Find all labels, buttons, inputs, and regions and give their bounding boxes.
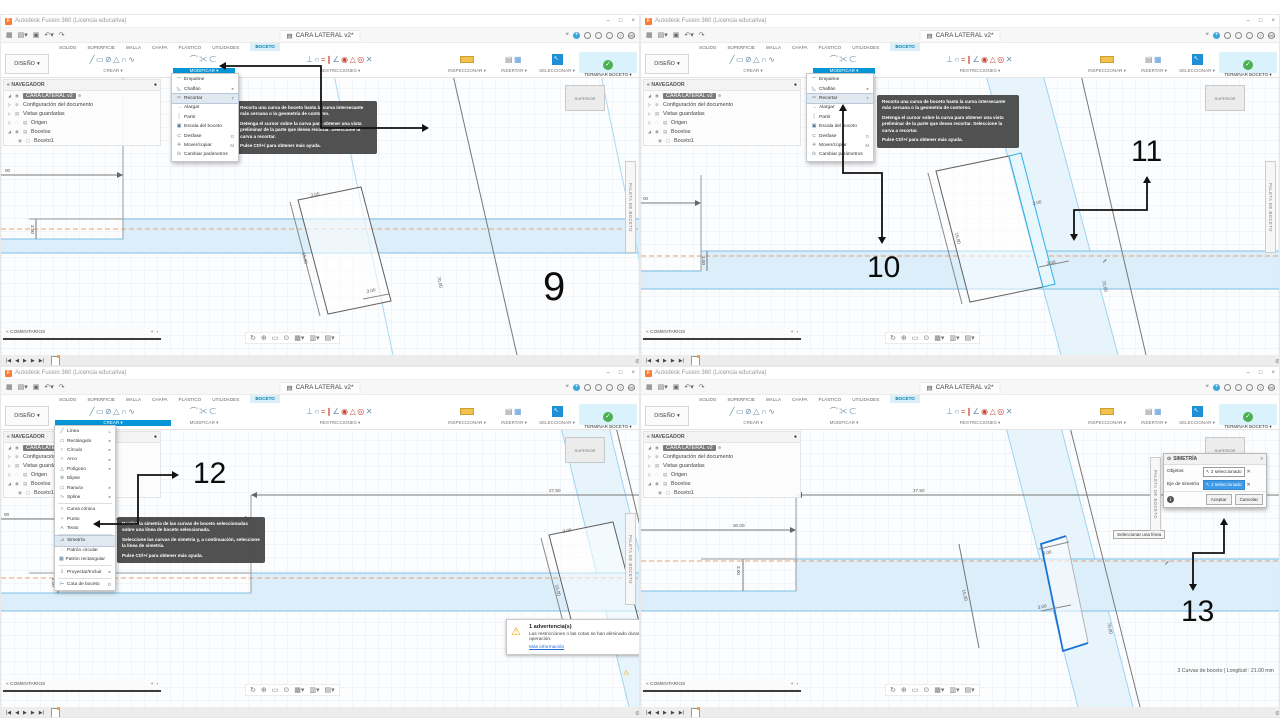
- add-comment-icon[interactable]: +: [791, 330, 794, 335]
- orbit-icon[interactable]: ↻: [890, 334, 896, 342]
- menu-item-desfase[interactable]: ⊂DesfaseO: [172, 131, 238, 140]
- inspeccionar-group-label[interactable]: INSPECCIONAR ▾: [445, 68, 489, 74]
- tab-solido[interactable]: SOLIDO: [699, 45, 716, 50]
- browser-item-origin[interactable]: ▷◌▤Origen: [4, 118, 160, 127]
- job-status-icon[interactable]: [595, 384, 602, 391]
- comments-bar[interactable]: « COMENTARIOS +›: [643, 327, 801, 340]
- menu-item-empalme[interactable]: ⌒Empalme: [807, 75, 873, 84]
- file-menu-icon[interactable]: ▤▾: [658, 383, 668, 391]
- save-icon[interactable]: ▣: [33, 31, 40, 39]
- browser-item-named-views[interactable]: ▷▤Vistas guardadas: [4, 109, 160, 118]
- job-status-icon[interactable]: [1235, 384, 1242, 391]
- menu-item-circulo[interactable]: ○Círculo▸: [55, 446, 115, 455]
- offset-tool-icon: ⊂: [209, 55, 219, 64]
- modificar-group-label[interactable]: MODIFICAR ▾: [813, 420, 875, 426]
- menu-item-mover[interactable]: ✛Mover/copiarM: [172, 141, 238, 150]
- menu-item-curva-conica[interactable]: ∩Curva cónica: [55, 505, 115, 514]
- menu-item-proyectar[interactable]: ⇩Proyectar/Incluir▸: [55, 567, 115, 576]
- timeline-begin-icon[interactable]: |◀: [6, 358, 11, 364]
- insertar-group-label[interactable]: INSERTAR ▾: [493, 420, 535, 426]
- browser-root-row[interactable]: ◢◉CARA LATERAL v2⊕: [644, 443, 800, 452]
- tab-plastico[interactable]: PLÁSTICO: [179, 397, 202, 402]
- menu-item-chaflan[interactable]: ◺Chaflán▸: [172, 84, 238, 93]
- circle-tool-icon: ⊘: [745, 55, 753, 64]
- rectangle-tool-icon: ▭: [96, 407, 105, 416]
- save-icon[interactable]: ▣: [673, 383, 680, 391]
- fillet-icon: ⌒: [176, 76, 182, 83]
- clear-selection-icon[interactable]: ✕: [1247, 482, 1251, 488]
- comments-bar[interactable]: « COMENTARIOS +›: [643, 679, 801, 692]
- timeline-end-icon[interactable]: ▶|: [39, 710, 44, 716]
- chevron-down-icon: ▾: [37, 61, 40, 67]
- tab-close-icon[interactable]: ×: [1205, 32, 1209, 38]
- finish-sketch-button[interactable]: ✓ TERMINAR BOCETO ▾: [579, 52, 637, 73]
- tab-chapa[interactable]: CHAPA: [152, 45, 168, 50]
- browser-root-row[interactable]: ◢◉CARA LATERAL v2⊕: [4, 91, 160, 100]
- pan-icon[interactable]: ⊕: [901, 686, 907, 694]
- new-tab-icon[interactable]: +: [1213, 384, 1220, 391]
- restricciones-group-label[interactable]: RESTRICCIONES ▾: [241, 420, 439, 426]
- fit-view-icon[interactable]: ⊙: [923, 686, 929, 694]
- select-cursor-icon[interactable]: ↖: [552, 54, 563, 65]
- expand-icon[interactable]: ›: [796, 682, 798, 687]
- tab-utilidades[interactable]: UTILIDADES: [212, 397, 239, 402]
- clear-selection-icon[interactable]: ✕: [1247, 469, 1251, 475]
- extensions-icon[interactable]: [1224, 384, 1231, 391]
- expand-icon[interactable]: ›: [796, 330, 798, 335]
- menu-item-punto[interactable]: +Punto: [55, 515, 115, 524]
- tab-chapa[interactable]: CHAPA: [792, 45, 808, 50]
- timeline-begin-icon[interactable]: |◀: [646, 710, 651, 716]
- minimize-button[interactable]: –: [607, 18, 610, 24]
- comments-bar[interactable]: « COMENTARIOS +›: [3, 679, 161, 692]
- tab-malla[interactable]: MALLA: [126, 45, 141, 50]
- insertar-group-label[interactable]: INSERTAR ▾: [493, 68, 535, 74]
- application-bar: ▦ ▤▾ ▣ ↶▾ ↷ ▤ CARA LATERAL v2* × + ? MC: [641, 380, 1279, 395]
- finish-sketch-button[interactable]: ✓ TERMINAR BOCETO ▾: [579, 404, 637, 425]
- folder-icon: ▤: [663, 120, 669, 126]
- timeline-begin-icon[interactable]: |◀: [6, 710, 11, 716]
- tab-plastico[interactable]: PLÁSTICO: [179, 45, 202, 50]
- insertar-group-label[interactable]: INSERTAR ▾: [1133, 420, 1175, 426]
- browser-options-icon[interactable]: ●: [794, 434, 797, 440]
- notifications-bell-icon[interactable]: [1246, 384, 1253, 391]
- tab-close-icon[interactable]: ×: [1205, 384, 1209, 390]
- select-cursor-icon[interactable]: ↖: [1192, 406, 1203, 417]
- info-icon[interactable]: i: [1167, 496, 1174, 503]
- notifications-bell-icon[interactable]: [606, 384, 613, 391]
- lock-icon: ◉: [341, 55, 349, 64]
- axis-selection-chip[interactable]: ↖1 seleccionado: [1203, 480, 1245, 490]
- tab-malla[interactable]: MALLA: [126, 397, 141, 402]
- symmetry-constraint-icon: ✕: [1006, 55, 1014, 64]
- timeline-sketch-marker[interactable]: [51, 708, 60, 718]
- browser-item-sketch1[interactable]: ◉▢Boceto1: [644, 488, 800, 497]
- maximize-button[interactable]: □: [1259, 18, 1263, 24]
- zoom-window-icon[interactable]: ▭: [272, 334, 279, 342]
- collapse-comments-icon[interactable]: «: [6, 330, 9, 335]
- menu-item-spline[interactable]: ∿Spline▸: [55, 493, 115, 502]
- measure-ruler-icon[interactable]: [1100, 408, 1114, 415]
- move-icon: ✛: [811, 143, 817, 148]
- menu-item-elipse[interactable]: ⊘Elipse: [55, 474, 115, 483]
- status-warning-icon[interactable]: ⚠: [623, 669, 629, 677]
- offset-tool-icon: ⊂: [849, 55, 859, 64]
- help-icon[interactable]: ?: [1257, 32, 1264, 39]
- timeline-forward-icon[interactable]: ▶: [31, 710, 35, 716]
- tab-solido[interactable]: SOLIDO: [699, 397, 716, 402]
- sketch-palette-collapsed[interactable]: PALETA DE BOCETO: [625, 161, 636, 253]
- fit-view-icon[interactable]: ⊙: [283, 686, 289, 694]
- timeline-play-icon[interactable]: ▶: [23, 358, 27, 364]
- browser-item-sketches[interactable]: ◢◉▤Bocetos: [644, 479, 800, 488]
- timeline-sketch-marker[interactable]: [51, 356, 60, 366]
- sketch-palette-collapsed[interactable]: PALETA DE BOCETO: [1150, 457, 1161, 531]
- browser-options-icon[interactable]: ●: [154, 434, 157, 440]
- app-grid-icon[interactable]: ▦: [6, 31, 13, 39]
- menu-item-escala[interactable]: ▣Escala del boceto: [807, 122, 873, 131]
- browser-options-icon[interactable]: ●: [154, 82, 157, 88]
- viewports-icon[interactable]: ▤▾: [325, 686, 335, 694]
- extensions-icon[interactable]: [1224, 32, 1231, 39]
- menu-item-alargar[interactable]: →Alargar: [807, 103, 873, 112]
- chevron-down-icon: ▾: [37, 413, 40, 419]
- avatar[interactable]: MC: [1268, 384, 1275, 391]
- tab-utilidades[interactable]: UTILIDADES: [852, 397, 879, 402]
- display-settings-icon[interactable]: ▦▾: [294, 686, 304, 694]
- polygon-tool-icon: △: [113, 407, 121, 416]
- timeline-play-icon[interactable]: ▶: [23, 710, 27, 716]
- menu-item-poligono[interactable]: △Polígono▸: [55, 465, 115, 474]
- redo-icon[interactable]: ↷: [59, 31, 65, 39]
- tab-utilidades[interactable]: UTILIDADES: [212, 45, 239, 50]
- browser-item-sketch1[interactable]: ◉▢Boceto1: [644, 136, 800, 145]
- crear-group-label[interactable]: CREAR ▾: [55, 68, 171, 74]
- menu-item-partir[interactable]: ┆Partir: [807, 113, 873, 122]
- tab-plastico[interactable]: PLÁSTICO: [819, 397, 842, 402]
- browser-item-sketches[interactable]: ◢◉▤Bocetos: [644, 127, 800, 136]
- dialog-dock-icon[interactable]: »: [1260, 456, 1263, 462]
- add-comment-icon[interactable]: +: [151, 682, 154, 687]
- timeline-forward-icon[interactable]: ▶: [31, 358, 35, 364]
- timeline-end-icon[interactable]: ▶|: [39, 358, 44, 364]
- add-comment-icon[interactable]: +: [151, 330, 154, 335]
- maximize-button[interactable]: □: [1259, 370, 1263, 376]
- timeline-sketch-marker[interactable]: [691, 356, 700, 366]
- pan-icon[interactable]: ⊕: [261, 334, 267, 342]
- add-comment-icon[interactable]: +: [791, 682, 794, 687]
- expand-icon[interactable]: ›: [156, 682, 158, 687]
- comments-label: COMENTARIOS: [650, 682, 685, 687]
- viewcube[interactable]: SUPERIOR: [1205, 85, 1245, 111]
- close-button[interactable]: ×: [631, 18, 635, 24]
- menu-item-simetria[interactable]: ⊿Simetría: [55, 536, 115, 545]
- new-tab-icon[interactable]: +: [1213, 32, 1220, 39]
- close-button[interactable]: ×: [631, 370, 635, 376]
- timeline-back-icon[interactable]: ◀: [655, 358, 659, 364]
- document-tab[interactable]: ▤ CARA LATERAL v2*: [280, 30, 361, 41]
- timeline-forward-icon[interactable]: ▶: [671, 358, 675, 364]
- minimize-button[interactable]: –: [607, 370, 610, 376]
- menu-item-escala[interactable]: ▣Escala del boceto: [172, 122, 238, 131]
- collapse-comments-icon[interactable]: «: [6, 682, 9, 687]
- close-button[interactable]: ×: [1271, 370, 1275, 376]
- redo-icon[interactable]: ↷: [59, 383, 65, 391]
- measure-ruler-icon[interactable]: [460, 56, 474, 63]
- tab-malla[interactable]: MALLA: [766, 397, 781, 402]
- timeline-play-icon[interactable]: ▶: [663, 358, 667, 364]
- file-menu-icon[interactable]: ▤▾: [658, 31, 668, 39]
- tab-utilidades[interactable]: UTILIDADES: [852, 45, 879, 50]
- measure-ruler-icon[interactable]: [460, 408, 474, 415]
- grid-settings-icon[interactable]: ▥▾: [949, 686, 959, 694]
- svg-text:27.50: 27.50: [913, 488, 925, 493]
- timeline-begin-icon[interactable]: |◀: [646, 358, 651, 364]
- redo-icon[interactable]: ↷: [699, 383, 705, 391]
- sketch-palette-collapsed[interactable]: PALETA DE BOCETO: [625, 513, 636, 605]
- avatar[interactable]: MC: [628, 384, 635, 391]
- tab-plastico[interactable]: PLÁSTICO: [819, 45, 842, 50]
- app-grid-icon[interactable]: ▦: [646, 383, 653, 391]
- inspeccionar-group-label[interactable]: INSPECCIONAR ▾: [1085, 420, 1129, 426]
- notifications-bell-icon[interactable]: [1246, 32, 1253, 39]
- browser-options-icon[interactable]: ●: [794, 82, 797, 88]
- undo-icon[interactable]: ↶▾: [684, 31, 693, 39]
- tab-superficie[interactable]: SUPERFICIE: [727, 397, 755, 402]
- browser-root-label: CARA LATERAL v2: [663, 93, 716, 99]
- symmetry-constraint-icon: ✕: [366, 407, 374, 416]
- new-tab-icon[interactable]: +: [573, 32, 580, 39]
- seleccionar-group-label[interactable]: SELECCIONAR ▾: [1179, 68, 1215, 74]
- job-status-icon[interactable]: [595, 32, 602, 39]
- menu-item-ranura[interactable]: ▭Ranura▸: [55, 483, 115, 492]
- app-grid-icon[interactable]: ▦: [6, 383, 13, 391]
- avatar[interactable]: MC: [628, 32, 635, 39]
- fit-view-icon[interactable]: ⊙: [923, 334, 929, 342]
- cancel-button[interactable]: Cancelar: [1235, 494, 1263, 505]
- menu-item-recortar[interactable]: ✂RecortarT: [807, 94, 873, 103]
- design-menu-button[interactable]: DISEÑO▾: [5, 406, 49, 426]
- menu-item-texto[interactable]: ATexto: [55, 524, 115, 533]
- browser-item-doc-settings[interactable]: ▷⊛Configuración del documento: [644, 452, 800, 461]
- seleccionar-group-label[interactable]: SELECCIONAR ▾: [539, 420, 575, 426]
- timeline-back-icon[interactable]: ◀: [655, 710, 659, 716]
- measure-ruler-icon[interactable]: [1100, 56, 1114, 63]
- undo-icon[interactable]: ↶▾: [684, 383, 693, 391]
- menu-item-parametros[interactable]: fxCambiar parámetros: [172, 150, 238, 159]
- menu-item-patron-rectangular[interactable]: ▦Patrón rectangular: [55, 555, 115, 564]
- comments-bar[interactable]: « COMENTARIOS +›: [3, 327, 161, 340]
- tab-malla[interactable]: MALLA: [766, 45, 781, 50]
- file-menu-icon[interactable]: ▤▾: [18, 31, 28, 39]
- restricciones-group-label[interactable]: RESTRICCIONES ▾: [881, 420, 1079, 426]
- grid-settings-icon[interactable]: ▥▾: [309, 686, 319, 694]
- grid-settings-icon[interactable]: ▥▾: [949, 334, 959, 342]
- document-tab[interactable]: ▤ CARA LATERAL v2*: [280, 382, 361, 393]
- zoom-window-icon[interactable]: ▭: [912, 686, 919, 694]
- fx-icon: fx: [176, 152, 182, 157]
- spline-tool-icon: ∿: [128, 55, 136, 64]
- finish-sketch-button[interactable]: ✓ TERMINAR BOCETO ▾: [1219, 52, 1277, 73]
- pan-icon[interactable]: ⊕: [901, 334, 907, 342]
- inspeccionar-group-label[interactable]: INSPECCIONAR ▾: [445, 420, 489, 426]
- maximize-button[interactable]: □: [619, 370, 623, 376]
- inspeccionar-group-label[interactable]: INSPECCIONAR ▾: [1085, 68, 1129, 74]
- tab-chapa[interactable]: CHAPA: [792, 397, 808, 402]
- warning-more-info-link[interactable]: Más información: [529, 645, 640, 650]
- tab-close-icon[interactable]: ×: [565, 32, 569, 38]
- viewports-icon[interactable]: ▤▾: [325, 334, 335, 342]
- tab-solido[interactable]: SOLIDO: [59, 397, 76, 402]
- extensions-icon[interactable]: [584, 384, 591, 391]
- new-tab-icon[interactable]: +: [573, 384, 580, 391]
- folder-icon: ▤: [23, 472, 29, 478]
- scale-icon: ▣: [811, 124, 817, 129]
- timeline-forward-icon[interactable]: ▶: [671, 710, 675, 716]
- select-cursor-icon[interactable]: ↖: [1192, 54, 1203, 65]
- expand-icon[interactable]: ›: [156, 330, 158, 335]
- orbit-icon[interactable]: ↻: [890, 686, 896, 694]
- close-button[interactable]: ×: [1271, 18, 1275, 24]
- zoom-window-icon[interactable]: ▭: [272, 686, 279, 694]
- maximize-button[interactable]: □: [619, 18, 623, 24]
- browser-item-doc-settings[interactable]: ▷⊛Configuración del documento: [644, 100, 800, 109]
- seleccionar-group-label[interactable]: SELECCIONAR ▾: [1179, 420, 1215, 426]
- crear-group-label[interactable]: CREAR ▾: [695, 420, 811, 426]
- tab-superficie[interactable]: SUPERFICIE: [727, 45, 755, 50]
- menu-item-recortar[interactable]: ✂RecortarT: [172, 94, 238, 103]
- modificar-group-label[interactable]: MODIFICAR ▾: [173, 420, 235, 426]
- extensions-icon[interactable]: [584, 32, 591, 39]
- browser-root-row[interactable]: ◢◉CARA LATERAL v2⊕: [644, 91, 800, 100]
- undo-icon[interactable]: ↶▾: [44, 383, 53, 391]
- help-icon[interactable]: ?: [617, 384, 624, 391]
- avatar[interactable]: MC: [1268, 32, 1275, 39]
- save-icon[interactable]: ▣: [673, 31, 680, 39]
- help-icon[interactable]: ?: [1257, 384, 1264, 391]
- crear-group-label[interactable]: CREAR ▾: [695, 68, 811, 74]
- grid-settings-icon[interactable]: ▥▾: [309, 334, 319, 342]
- collapse-panel-icon[interactable]: «: [7, 434, 10, 440]
- timeline-back-icon[interactable]: ◀: [15, 710, 19, 716]
- notifications-bell-icon[interactable]: [606, 32, 613, 39]
- timeline-settings-gear-icon[interactable]: ⊛: [1275, 710, 1280, 717]
- viewports-icon[interactable]: ▤▾: [965, 686, 975, 694]
- restricciones-group-label[interactable]: RESTRICCIONES ▾: [881, 68, 1079, 74]
- menu-item-parametros[interactable]: fxCambiar parámetros: [807, 150, 873, 159]
- pan-icon[interactable]: ⊕: [261, 686, 267, 694]
- circle-tool-icon: ⊘: [105, 407, 113, 416]
- minimize-button[interactable]: –: [1247, 370, 1250, 376]
- design-menu-button[interactable]: DISEÑO▾: [5, 54, 49, 74]
- fit-view-icon[interactable]: ⊙: [283, 334, 289, 342]
- collapse-panel-icon[interactable]: «: [647, 82, 650, 88]
- help-icon[interactable]: ?: [617, 32, 624, 39]
- eye-icon: ◌: [15, 120, 21, 125]
- app-grid-icon[interactable]: ▦: [646, 31, 653, 39]
- minimize-button[interactable]: –: [1247, 18, 1250, 24]
- browser-item-named-views[interactable]: ▷▤Vistas guardadas: [644, 461, 800, 470]
- browser-item-doc-settings[interactable]: ▷⊛Configuración del documento: [4, 100, 160, 109]
- menu-item-linea[interactable]: ╱LíneaL: [55, 427, 115, 436]
- collapse-panel-icon[interactable]: «: [7, 82, 10, 88]
- menu-item-empalme[interactable]: ⌒Empalme: [172, 75, 238, 84]
- design-menu-button[interactable]: DISEÑO▾: [645, 406, 689, 426]
- zoom-window-icon[interactable]: ▭: [912, 334, 919, 342]
- tab-chapa[interactable]: CHAPA: [152, 397, 168, 402]
- objects-selection-chip[interactable]: ↖2 seleccionado: [1203, 467, 1245, 477]
- menu-item-arco[interactable]: ∩Arco▸: [55, 455, 115, 464]
- menu-item-patron-circular[interactable]: ◌Patrón circular: [55, 546, 115, 555]
- tab-superficie[interactable]: SUPERFICIE: [87, 397, 115, 402]
- viewcube[interactable]: SUPERIOR: [565, 85, 605, 111]
- timeline-end-icon[interactable]: ▶|: [679, 358, 684, 364]
- menu-item-desfase[interactable]: ⊂DesfaseO: [807, 131, 873, 140]
- menu-item-chaflan[interactable]: ◺Chaflán▸: [807, 84, 873, 93]
- collapse-comments-icon[interactable]: «: [646, 682, 649, 687]
- sketch-palette-collapsed[interactable]: PALETA DE BOCETO: [1265, 161, 1276, 253]
- collapse-panel-icon[interactable]: «: [647, 434, 650, 440]
- screenshot-step9: 00 3.00 3.00 15.00 3.00 70.00 F Autodesk…: [0, 14, 640, 366]
- collapse-comments-icon[interactable]: «: [646, 330, 649, 335]
- tab-close-icon[interactable]: ×: [565, 384, 569, 390]
- browser-item-named-views[interactable]: ▷▤Vistas guardadas: [644, 109, 800, 118]
- seleccionar-group-label[interactable]: SELECCIONAR ▾: [539, 68, 575, 74]
- tab-superficie[interactable]: SUPERFICIE: [87, 45, 115, 50]
- orbit-icon[interactable]: ↻: [250, 686, 256, 694]
- document-tab[interactable]: ▤ CARA LATERAL v2*: [920, 382, 1001, 393]
- timeline-play-icon[interactable]: ▶: [663, 710, 667, 716]
- browser-item-sketches[interactable]: ◢◉▤Bocetos: [4, 127, 160, 136]
- undo-icon[interactable]: ↶▾: [44, 31, 53, 39]
- menu-item-alargar[interactable]: →Alargar: [172, 103, 238, 112]
- select-cursor-icon[interactable]: ↖: [552, 406, 563, 417]
- menu-item-partir[interactable]: ┆Partir: [172, 113, 238, 122]
- timeline-sketch-marker[interactable]: [691, 708, 700, 718]
- tab-solido[interactable]: SOLIDO: [59, 45, 76, 50]
- menu-item-cota[interactable]: ⊢Cota de bocetoD: [55, 580, 115, 589]
- spline-icon: ∿: [59, 495, 65, 500]
- save-icon[interactable]: ▣: [33, 383, 40, 391]
- viewcube[interactable]: SUPERIOR: [565, 437, 605, 463]
- timeline-settings-gear-icon[interactable]: ⊛: [1275, 358, 1280, 365]
- viewports-icon[interactable]: ▤▾: [965, 334, 975, 342]
- restricciones-group-label[interactable]: RESTRICCIONES ▾: [241, 68, 439, 74]
- accept-button[interactable]: Aceptar: [1206, 494, 1232, 505]
- job-status-icon[interactable]: [1235, 32, 1242, 39]
- timeline-end-icon[interactable]: ▶|: [679, 710, 684, 716]
- insertar-group-label[interactable]: INSERTAR ▾: [1133, 68, 1175, 74]
- display-settings-icon[interactable]: ▦▾: [934, 334, 944, 342]
- eye-icon: ◉: [15, 93, 21, 99]
- menu-item-rectangulo[interactable]: ▭Rectángulo▸: [55, 436, 115, 445]
- display-settings-icon[interactable]: ▦▾: [294, 334, 304, 342]
- orbit-icon[interactable]: ↻: [250, 334, 256, 342]
- browser-item-sketch1[interactable]: ◉▢Boceto1: [4, 136, 160, 145]
- timeline-back-icon[interactable]: ◀: [15, 358, 19, 364]
- browser-item-origin[interactable]: ▷◌▤Origen: [644, 470, 800, 479]
- file-menu-icon[interactable]: ▤▾: [18, 383, 28, 391]
- display-settings-icon[interactable]: ▦▾: [934, 686, 944, 694]
- trim-scissors-icon: ✂: [199, 407, 209, 416]
- redo-icon[interactable]: ↷: [699, 31, 705, 39]
- menu-item-mover[interactable]: ✛Mover/copiarM: [807, 141, 873, 150]
- document-tab-label: CARA LATERAL v2*: [296, 32, 354, 39]
- browser-item-origin[interactable]: ▷◌▤Origen: [644, 118, 800, 127]
- document-tab[interactable]: ▤ CARA LATERAL v2*: [920, 30, 1001, 41]
- finish-sketch-button[interactable]: ✓ TERMINAR BOCETO ▾: [1219, 404, 1277, 425]
- design-menu-button[interactable]: DISEÑO▾: [645, 54, 689, 74]
